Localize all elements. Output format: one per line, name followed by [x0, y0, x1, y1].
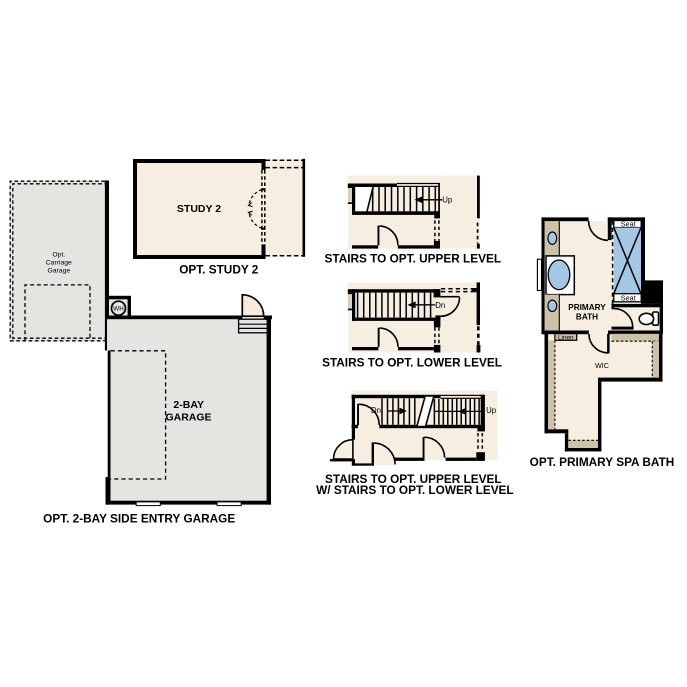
- svg-text:WH: WH: [113, 306, 124, 313]
- svg-text:W/ STAIRS TO OPT. LOWER LEVEL: W/ STAIRS TO OPT. LOWER LEVEL: [316, 483, 514, 497]
- svg-text:OPT. 2-BAY SIDE ENTRY GARAGE: OPT. 2-BAY SIDE ENTRY GARAGE: [43, 512, 235, 526]
- svg-text:Dn: Dn: [435, 301, 445, 310]
- svg-text:Up: Up: [442, 196, 453, 205]
- svg-text:Up: Up: [486, 406, 497, 415]
- svg-text:Carriage: Carriage: [46, 260, 72, 267]
- svg-text:Seat: Seat: [621, 294, 636, 303]
- svg-text:OPT. STUDY 2: OPT. STUDY 2: [179, 262, 259, 276]
- svg-text:OPT. PRIMARY SPA BATH: OPT. PRIMARY SPA BATH: [530, 455, 675, 469]
- svg-text:Linen: Linen: [558, 334, 574, 341]
- svg-text:Dn: Dn: [371, 406, 381, 415]
- svg-text:2-BAY: 2-BAY: [173, 399, 204, 411]
- svg-text:Opt.: Opt.: [52, 252, 65, 259]
- svg-text:Seat: Seat: [621, 220, 636, 229]
- svg-text:STAIRS TO OPT. LOWER LEVEL: STAIRS TO OPT. LOWER LEVEL: [322, 355, 502, 369]
- svg-text:WIC: WIC: [595, 361, 609, 370]
- svg-text:STUDY 2: STUDY 2: [177, 203, 221, 215]
- svg-text:BATH: BATH: [576, 313, 598, 322]
- svg-text:STAIRS TO OPT. UPPER LEVEL: STAIRS TO OPT. UPPER LEVEL: [325, 251, 502, 265]
- svg-text:GARAGE: GARAGE: [165, 412, 211, 424]
- svg-text:PRIMARY: PRIMARY: [568, 303, 606, 312]
- svg-text:Garage: Garage: [47, 268, 70, 275]
